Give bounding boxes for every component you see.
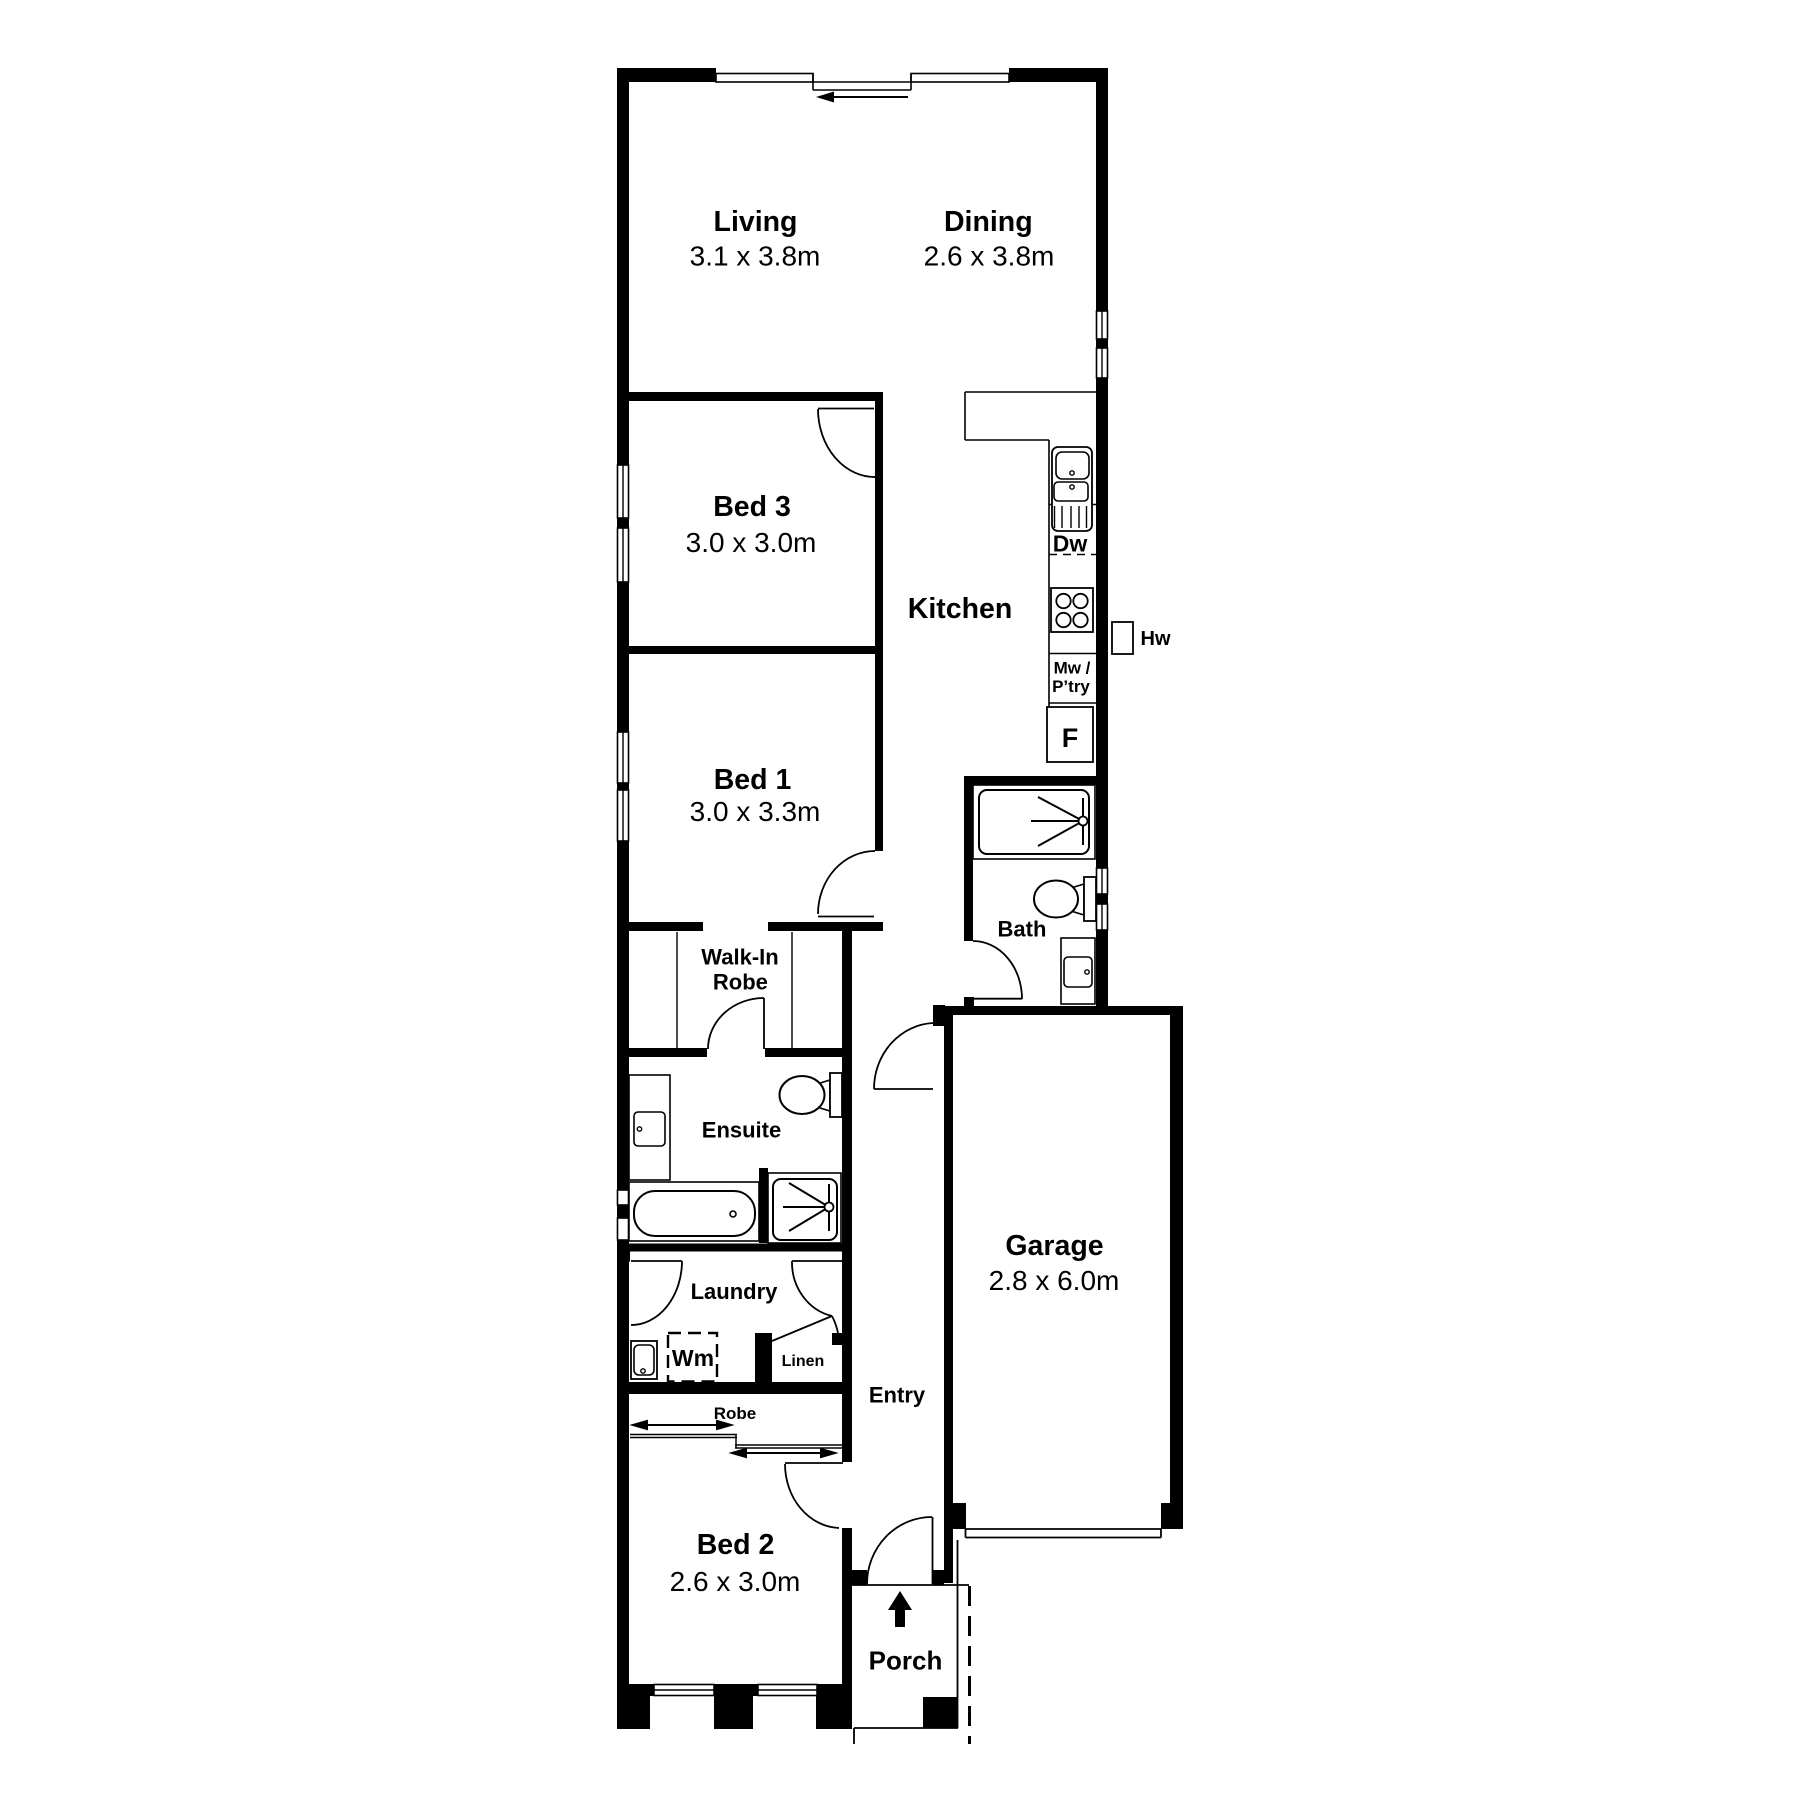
svg-text:Entry: Entry bbox=[869, 1383, 926, 1408]
svg-text:Living: Living bbox=[714, 206, 798, 238]
svg-text:Mw /: Mw / bbox=[1054, 659, 1091, 678]
svg-text:Walk-In: Walk-In bbox=[701, 945, 778, 970]
svg-text:Dining: Dining bbox=[944, 206, 1033, 238]
svg-text:2.6 x 3.0m: 2.6 x 3.0m bbox=[670, 1566, 801, 1597]
svg-text:Kitchen: Kitchen bbox=[908, 593, 1013, 625]
svg-text:F: F bbox=[1062, 723, 1079, 753]
svg-text:Wm: Wm bbox=[672, 1345, 714, 1371]
svg-text:2.8 x 6.0m: 2.8 x 6.0m bbox=[989, 1265, 1120, 1296]
svg-text:Robe: Robe bbox=[714, 1404, 757, 1423]
svg-text:Dw: Dw bbox=[1053, 531, 1088, 557]
svg-text:Bed 2: Bed 2 bbox=[697, 1529, 775, 1561]
svg-text:3.1 x 3.8m: 3.1 x 3.8m bbox=[690, 241, 821, 272]
svg-text:Linen: Linen bbox=[782, 1353, 825, 1370]
svg-text:Porch: Porch bbox=[869, 1646, 943, 1676]
svg-text:Laundry: Laundry bbox=[691, 1279, 779, 1304]
svg-text:Bed 1: Bed 1 bbox=[714, 764, 792, 796]
svg-text:3.0 x 3.0m: 3.0 x 3.0m bbox=[686, 527, 817, 558]
svg-text:2.6 x 3.8m: 2.6 x 3.8m bbox=[924, 241, 1055, 272]
svg-text:Bed 3: Bed 3 bbox=[713, 491, 791, 523]
svg-text:3.0 x 3.3m: 3.0 x 3.3m bbox=[690, 796, 821, 827]
svg-text:Garage: Garage bbox=[1005, 1230, 1103, 1262]
svg-text:Ensuite: Ensuite bbox=[702, 1118, 781, 1143]
svg-text:Robe: Robe bbox=[713, 970, 768, 995]
svg-text:Bath: Bath bbox=[998, 917, 1047, 942]
svg-text:Hw: Hw bbox=[1141, 628, 1171, 650]
svg-text:P’try: P’try bbox=[1052, 677, 1090, 696]
